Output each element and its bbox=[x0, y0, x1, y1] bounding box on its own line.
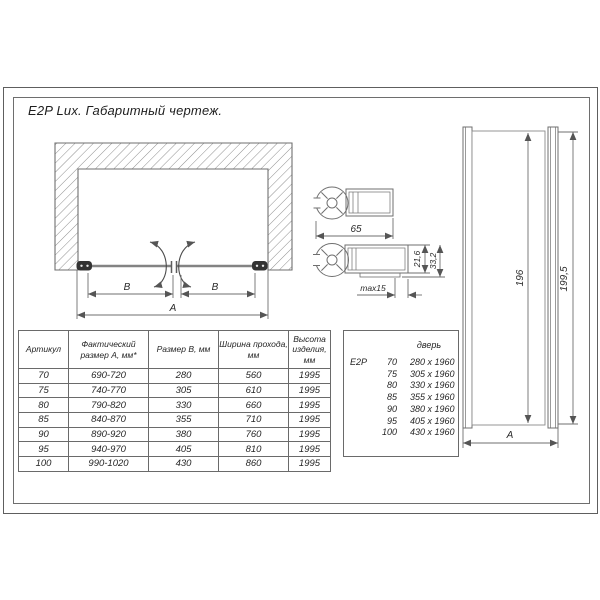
door-size: 280 x 1960 bbox=[400, 357, 458, 369]
cell: 1995 bbox=[289, 427, 331, 442]
cell: 890-920 bbox=[69, 427, 149, 442]
cell: 430 bbox=[149, 457, 219, 472]
series-label: E2P bbox=[344, 357, 374, 369]
table-row: 80790-8203306601995 bbox=[19, 398, 331, 413]
swing-arcs bbox=[150, 242, 195, 287]
cell: 710 bbox=[219, 413, 289, 428]
col-header-passage: Ширина прохода, мм bbox=[219, 331, 289, 369]
table-row: 100990-10204308601995 bbox=[19, 457, 331, 472]
cell: 80 bbox=[19, 398, 69, 413]
size-table: Артикул Фактический размер А, мм* Размер… bbox=[18, 330, 331, 472]
hinge-profile-top-detail: 65 bbox=[302, 182, 450, 242]
door-size: 380 x 1960 bbox=[400, 404, 458, 416]
table-row: 75740-7703056101995 bbox=[19, 383, 331, 398]
cell: 90 bbox=[19, 427, 69, 442]
drawing-title: E2P Lux. Габаритный чертеж. bbox=[28, 103, 222, 118]
door-size: 355 x 1960 bbox=[400, 392, 458, 404]
dim-label-33-2: 33,2 bbox=[428, 252, 438, 269]
cell: 940-970 bbox=[69, 442, 149, 457]
hinge-left bbox=[77, 261, 93, 271]
hinge-right bbox=[252, 261, 268, 271]
article: 75 bbox=[374, 369, 400, 381]
niche-plan-drawing: B B A bbox=[38, 134, 296, 324]
cell: 790-820 bbox=[69, 398, 149, 413]
cell: 1995 bbox=[289, 398, 331, 413]
dim-label-a: A bbox=[169, 303, 177, 314]
cell: 305 bbox=[149, 383, 219, 398]
adjustable-lip bbox=[360, 273, 400, 277]
cell: 75 bbox=[19, 383, 69, 398]
cell: 760 bbox=[219, 427, 289, 442]
article: 80 bbox=[374, 380, 400, 392]
dim-label-max15: max15 bbox=[360, 283, 386, 293]
cell: 1995 bbox=[289, 383, 331, 398]
wall-profile-body bbox=[345, 245, 408, 273]
list-item: 100430 x 1960 bbox=[344, 427, 458, 439]
cell: 70 bbox=[19, 369, 69, 384]
col-header-size-b: Размер В, мм bbox=[149, 331, 219, 369]
article: 85 bbox=[374, 392, 400, 404]
list-item: 90380 x 1960 bbox=[344, 404, 458, 416]
dim-label-b-right: B bbox=[212, 282, 219, 293]
door-profile-strip bbox=[548, 127, 558, 428]
glass-slot bbox=[313, 255, 320, 266]
cell: 380 bbox=[149, 427, 219, 442]
cell: 330 bbox=[149, 398, 219, 413]
hinge-profile-bottom-detail: 21,6 33,2 max15 bbox=[297, 240, 455, 304]
drawing-sheet: E2P Lux. Габаритный чертеж. bbox=[0, 0, 600, 600]
door-box-header: дверь bbox=[344, 340, 458, 350]
cell: 660 bbox=[219, 398, 289, 413]
door-size-box: дверь E2P 70 280 x 1960 75305 x 1960 803… bbox=[343, 330, 459, 457]
col-header-article: Артикул bbox=[19, 331, 69, 369]
col-header-actual-a: Фактический размер А, мм* bbox=[69, 331, 149, 369]
cell: 1995 bbox=[289, 457, 331, 472]
list-item: 85355 x 1960 bbox=[344, 392, 458, 404]
door-size: 330 x 1960 bbox=[400, 380, 458, 392]
cell: 355 bbox=[149, 413, 219, 428]
cell: 990-1020 bbox=[69, 457, 149, 472]
list-item: 75305 x 1960 bbox=[344, 369, 458, 381]
dim-label-a-width: A bbox=[506, 430, 514, 441]
cell: 810 bbox=[219, 442, 289, 457]
size-table-header-row: Артикул Фактический размер А, мм* Размер… bbox=[19, 331, 331, 369]
door-edge-ticks bbox=[172, 261, 177, 273]
article: 95 bbox=[374, 416, 400, 428]
article: 100 bbox=[374, 427, 400, 439]
hinge-barrel bbox=[316, 244, 349, 277]
door-front-view: 196 199,5 A bbox=[455, 122, 591, 456]
cell: 100 bbox=[19, 457, 69, 472]
cell: 860 bbox=[219, 457, 289, 472]
cell: 85 bbox=[19, 413, 69, 428]
dim-label-21-6: 21,6 bbox=[412, 250, 422, 268]
table-row: 70690-7202805601995 bbox=[19, 369, 331, 384]
article: 90 bbox=[374, 404, 400, 416]
door-size: 305 x 1960 bbox=[400, 369, 458, 381]
cell: 1995 bbox=[289, 369, 331, 384]
table-row: 95940-9704058101995 bbox=[19, 442, 331, 457]
col-header-height: Высота изделия, мм bbox=[289, 331, 331, 369]
article: 70 bbox=[374, 357, 400, 369]
list-item: E2P 70 280 x 1960 bbox=[344, 357, 458, 369]
hinge-barrel bbox=[316, 187, 348, 219]
cell: 690-720 bbox=[69, 369, 149, 384]
door-size: 405 x 1960 bbox=[400, 416, 458, 428]
list-item: 95405 x 1960 bbox=[344, 416, 458, 428]
table-row: 90890-9203807601995 bbox=[19, 427, 331, 442]
cell: 840-870 bbox=[69, 413, 149, 428]
wall-profile-strip bbox=[463, 127, 472, 428]
cell: 1995 bbox=[289, 413, 331, 428]
cell: 610 bbox=[219, 383, 289, 398]
dim-label-199-5: 199,5 bbox=[559, 266, 570, 291]
list-item: 80330 x 1960 bbox=[344, 380, 458, 392]
door-size: 430 x 1960 bbox=[400, 427, 458, 439]
cell: 405 bbox=[149, 442, 219, 457]
dim-label-b-left: B bbox=[124, 282, 131, 293]
dim-label-196: 196 bbox=[515, 269, 526, 286]
cell: 560 bbox=[219, 369, 289, 384]
wall-hatched bbox=[55, 143, 292, 270]
door-column-label: дверь bbox=[400, 340, 458, 350]
cell: 280 bbox=[149, 369, 219, 384]
cell: 740-770 bbox=[69, 383, 149, 398]
cell: 1995 bbox=[289, 442, 331, 457]
glass-panel bbox=[472, 131, 545, 425]
cell: 95 bbox=[19, 442, 69, 457]
table-row: 85840-8703557101995 bbox=[19, 413, 331, 428]
dim-label-65: 65 bbox=[350, 224, 362, 235]
glass-slot bbox=[314, 198, 321, 208]
